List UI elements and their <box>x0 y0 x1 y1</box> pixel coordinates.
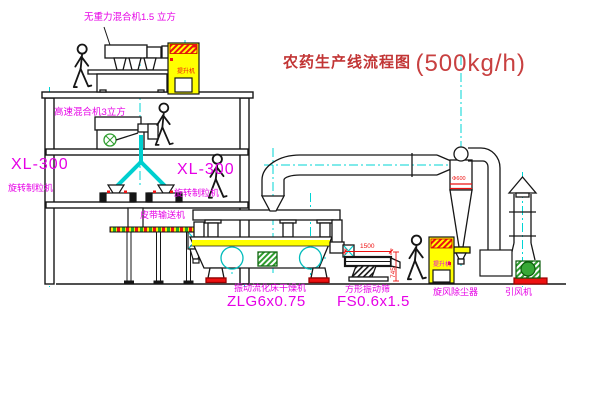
flow-diagram-canvas: 农药生产线流程图 (500kg/h) 无重力混合机1.5 立方 高速混合机3立方… <box>0 0 600 403</box>
label-gravity-free-mixer: 无重力混合机1.5 立方 <box>84 13 176 23</box>
worker-figure-4 <box>408 236 426 280</box>
elevator2-text: 提升机 <box>433 262 451 268</box>
high-speed-mixer <box>95 117 158 149</box>
label-granulator-left-name: 旋转制粒机 <box>8 184 53 193</box>
label-cyclone: 旋风除尘器 <box>433 288 478 297</box>
label-dryer-model: ZLG6x0.75 <box>227 294 306 309</box>
worker-figure-1 <box>74 45 91 88</box>
label-granulator-left-model: XL-300 <box>11 157 69 173</box>
drawing-title-text: 农药生产线流程图 <box>283 54 411 71</box>
granulator-left <box>100 185 136 202</box>
elevator1-text: 提升机 <box>177 69 195 75</box>
cyclone-spec-text: Φ600 <box>452 177 466 183</box>
label-granulator-right-name: 旋转制粒机 <box>174 189 219 198</box>
worker-figure-2 <box>156 103 173 144</box>
dimension-height-text: 745 <box>391 267 398 278</box>
exhaust-duct <box>262 153 451 211</box>
label-sieve-model: FS0.6x1.5 <box>337 294 410 309</box>
label-belt-conveyor: 皮带输送机 <box>140 211 185 220</box>
dimension-width-text: 1500 <box>360 244 374 251</box>
label-induced-fan: 引风机 <box>505 288 532 297</box>
label-dryer-name: 振动流化床干燥机 <box>234 284 306 293</box>
label-high-speed-mixer: 高速混合机3立方 <box>54 108 126 118</box>
induced-draft-fan <box>480 250 547 284</box>
outlet-duct <box>468 148 500 252</box>
label-granulator-right-model: XL-300 <box>177 162 235 178</box>
fluid-bed-dryer <box>190 210 344 283</box>
drawing-title-capacity: (500kg/h) <box>415 50 525 77</box>
drawing-title: 农药生产线流程图 (500kg/h) <box>283 50 526 78</box>
bucket-elevator-2 <box>429 237 454 283</box>
